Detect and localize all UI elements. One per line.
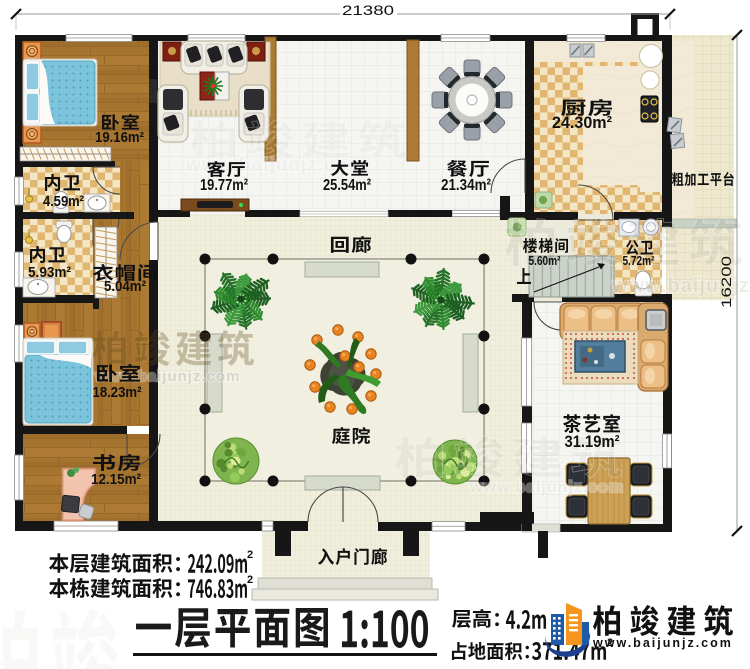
svg-text:21380: 21380 <box>342 2 394 18</box>
svg-text:5.72m²: 5.72m² <box>623 254 655 268</box>
svg-text:2: 2 <box>247 549 253 561</box>
svg-text:21.34m²: 21.34m² <box>441 177 491 194</box>
svg-text:4.59m²: 4.59m² <box>43 193 84 210</box>
svg-text:19.77m²: 19.77m² <box>200 177 248 194</box>
svg-text:19.16m²: 19.16m² <box>95 130 144 146</box>
svg-text:www.baijunjz.com: www.baijunjz.com <box>469 479 624 496</box>
svg-text:2: 2 <box>247 574 253 586</box>
svg-text:16200: 16200 <box>718 256 734 308</box>
svg-text:5.93m²: 5.93m² <box>28 264 71 281</box>
svg-text:5.04m²: 5.04m² <box>104 278 146 295</box>
svg-text:www.baijunjz.com: www.baijunjz.com <box>592 636 733 650</box>
svg-text:25.54m²: 25.54m² <box>323 177 371 194</box>
svg-text:31.19m²: 31.19m² <box>565 433 620 451</box>
svg-text:18.23m²: 18.23m² <box>93 384 142 401</box>
svg-text:www.baijunjz.com: www.baijunjz.com <box>94 368 240 385</box>
svg-text:24.30m²: 24.30m² <box>552 114 612 132</box>
svg-text:12.15m²: 12.15m² <box>91 471 141 488</box>
svg-text:5.60m²: 5.60m² <box>529 254 561 268</box>
